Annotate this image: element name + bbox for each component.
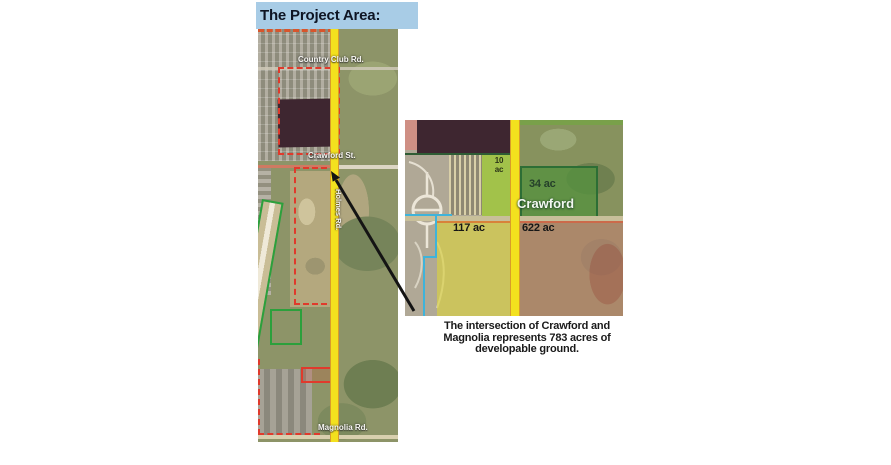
inset-road-label-crawford: Crawford [517, 196, 574, 211]
caption-line-3: developable ground. [424, 344, 630, 356]
parcel-overlay-622ac [520, 221, 623, 316]
caption: The intersection of Crawford and Magnoli… [424, 321, 630, 356]
parcel-overlay-117ac [437, 221, 510, 316]
red-boundary-left [258, 359, 260, 435]
road-label-country-club: Country Club Rd. [298, 55, 364, 64]
red-boundary-bottom [258, 433, 320, 435]
cyan-boundary-v1 [435, 216, 437, 258]
inset-aerial-map: 10 ac 34 ac Crawford 117 ac 622 ac [405, 120, 623, 316]
page-title-banner: The Project Area: [256, 2, 418, 29]
road-label-magnolia-rd: Magnolia Rd. [318, 423, 368, 432]
cyan-boundary-h1 [423, 256, 437, 258]
crawford-road-line-east [337, 165, 398, 169]
caption-line-1: The intersection of Crawford and [424, 321, 630, 333]
inset-magnolia-road-highlight [510, 120, 520, 316]
red-outlined-parcel-small [301, 367, 333, 383]
parcel-label-622ac: 622 ac [522, 222, 554, 234]
green-outlined-parcel-box [270, 309, 302, 345]
parcel-label-34ac: 34 ac [529, 178, 556, 190]
cyan-boundary-h [405, 214, 452, 216]
magnolia-road-line [258, 435, 398, 439]
road-label-crawford-st: Crawford St. [308, 151, 356, 160]
main-aerial-map: Country Club Rd. Crawford St. Holmes Rd.… [258, 29, 398, 442]
parcel-label-117ac: 117 ac [453, 222, 485, 234]
road-label-holmes-rd: Holmes Rd. [334, 189, 343, 230]
cyan-boundary-v2 [423, 256, 425, 316]
parcel-label-10ac: 10 ac [491, 156, 507, 174]
holmes-road-highlight [330, 29, 339, 442]
page-title: The Project Area: [260, 7, 380, 24]
red-boundary-top [258, 29, 334, 32]
slide: The Project Area: Country Club Rd. Crawf… [0, 0, 891, 465]
